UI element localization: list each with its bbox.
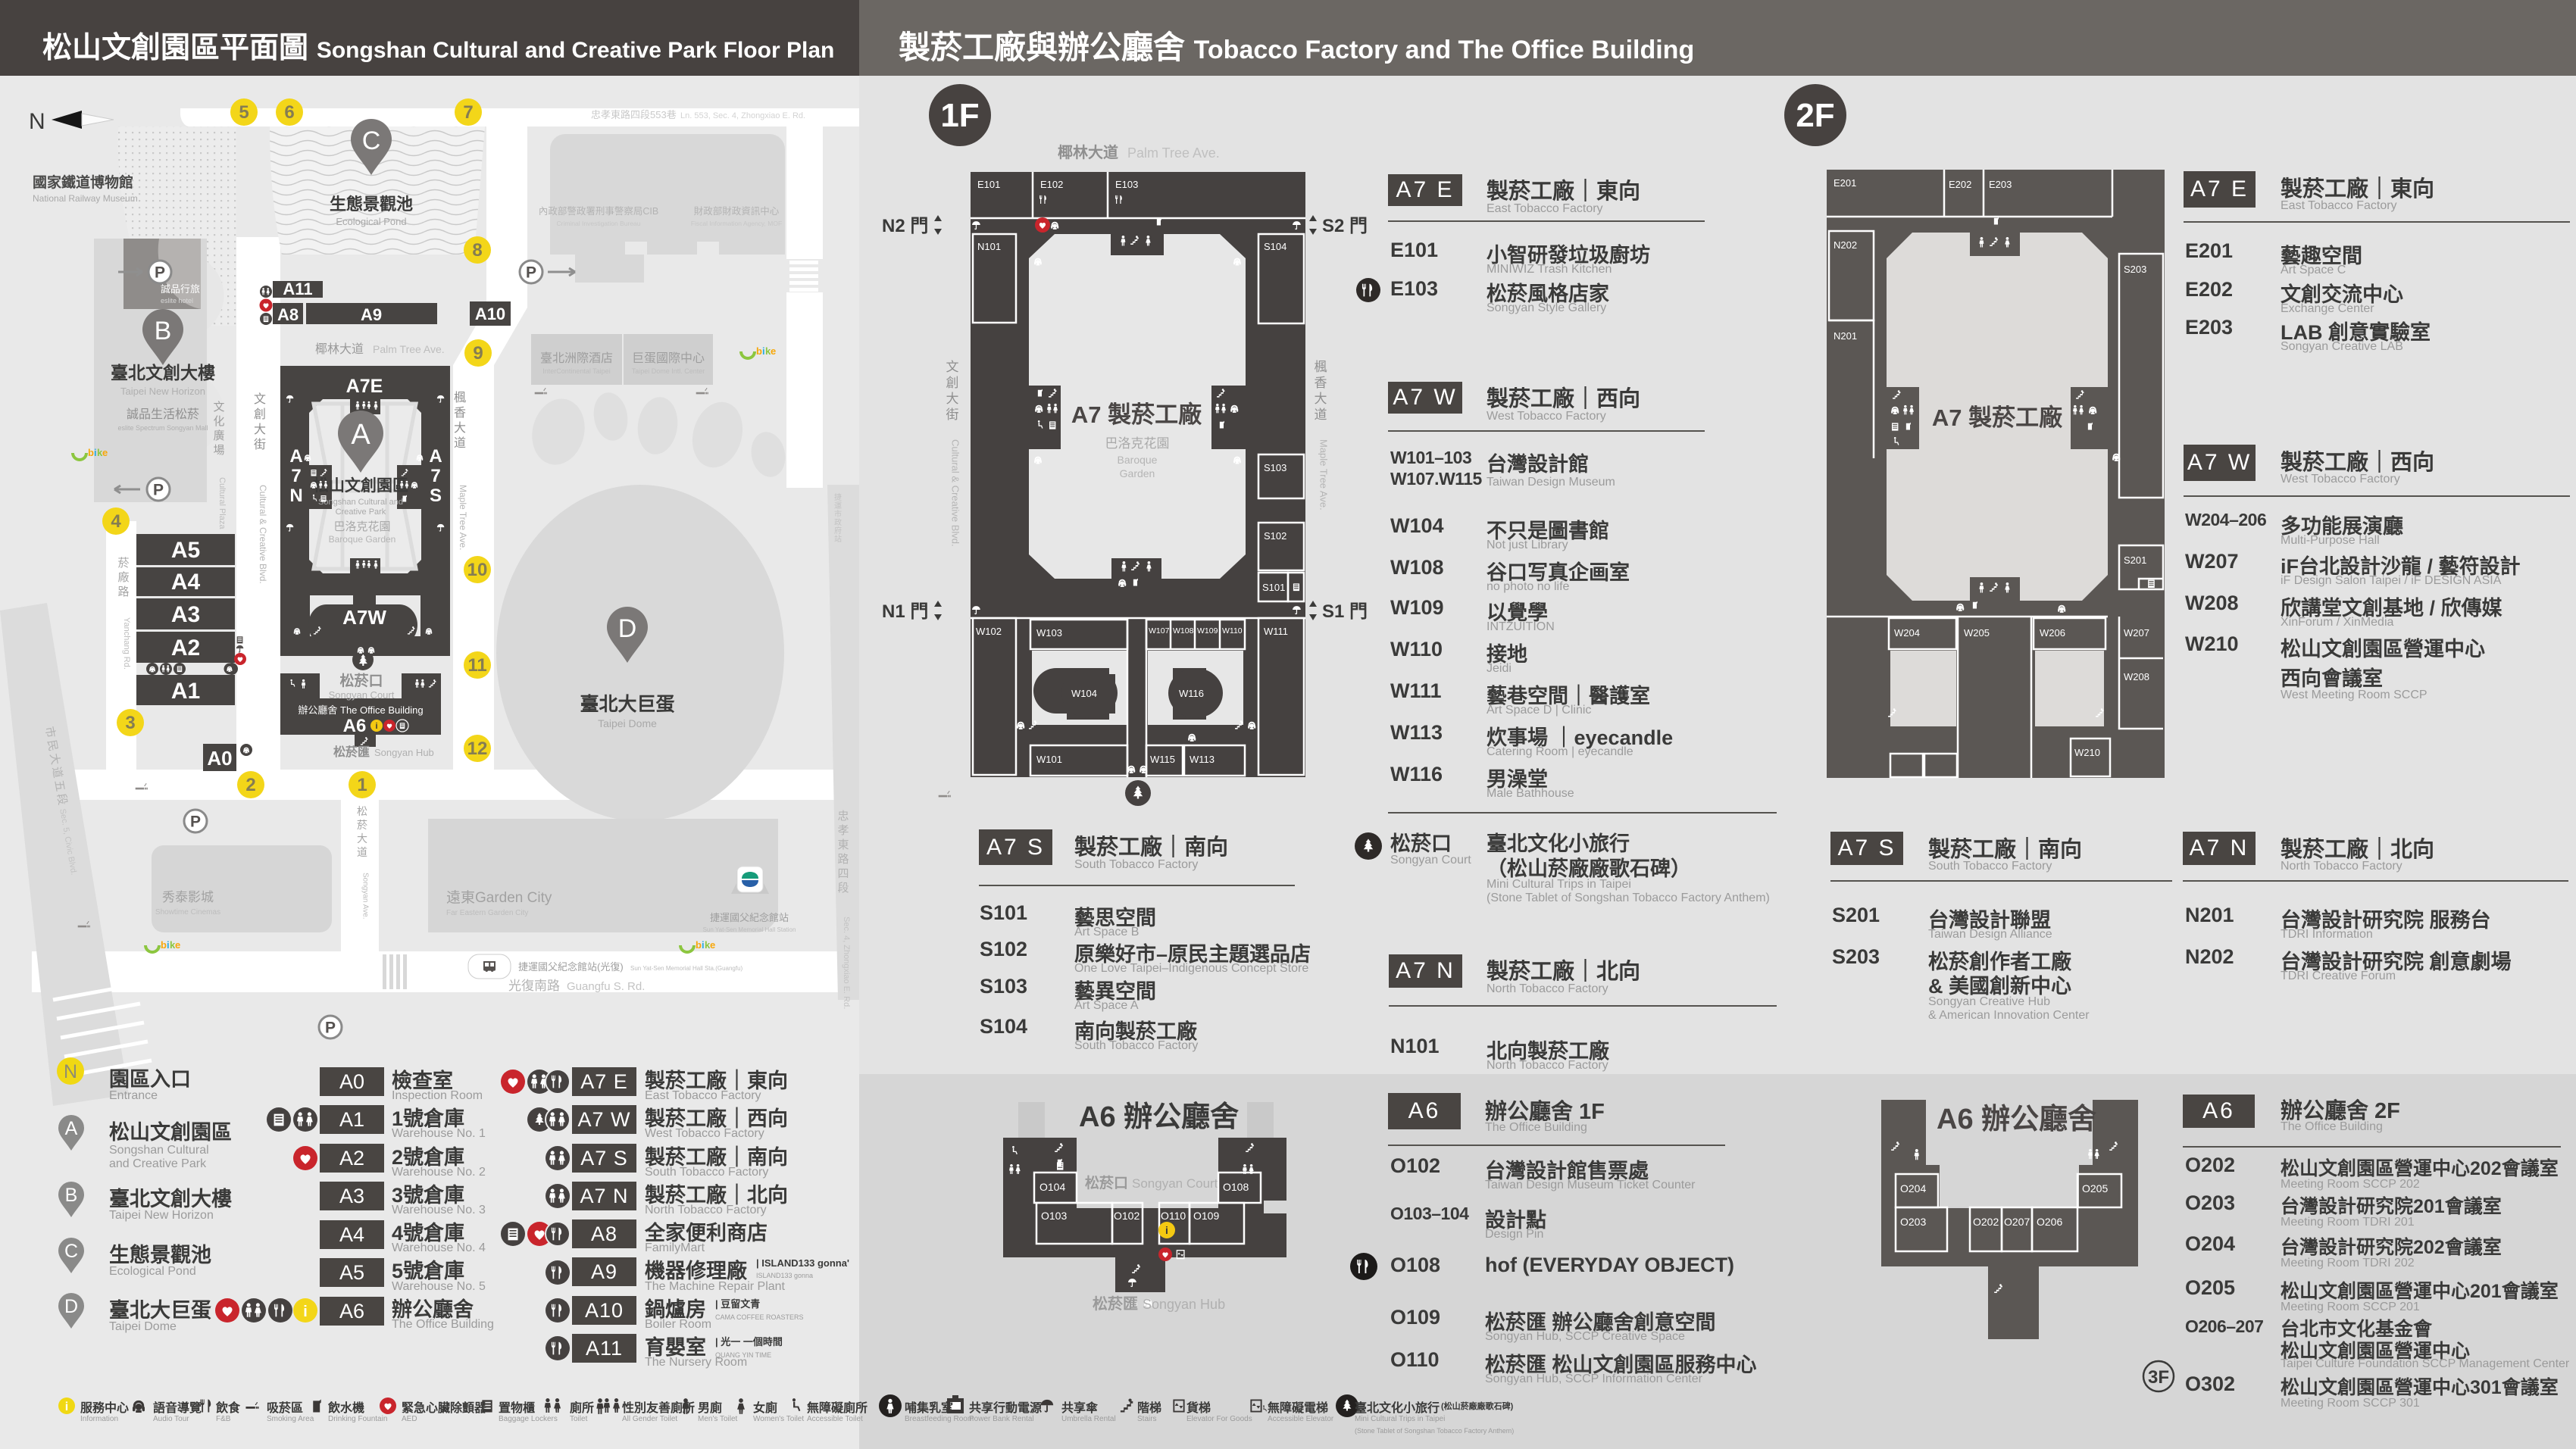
svg-text:e: e <box>710 939 715 951</box>
svg-text:巴洛克花園: 巴洛克花園 <box>333 520 390 533</box>
svg-text:2: 2 <box>245 775 255 795</box>
svg-text:7: 7 <box>291 466 301 486</box>
svg-text:Guangfu S. Rd.: Guangfu S. Rd. <box>567 980 645 993</box>
svg-text:1: 1 <box>357 775 367 795</box>
svg-text:W206: W206 <box>2040 627 2065 639</box>
svg-text:A4: A4 <box>171 570 201 595</box>
svg-text:W116: W116 <box>1179 688 1204 699</box>
svg-text:A: A <box>65 1118 78 1139</box>
svg-text:誠品生活松菸: 誠品生活松菸 <box>127 408 199 421</box>
svg-text:B: B <box>155 317 172 345</box>
svg-text:文創大街: 文創大街 <box>946 360 959 422</box>
svg-text:臺北洲際酒店: 臺北洲際酒店 <box>540 351 613 365</box>
svg-text:A5: A5 <box>171 538 200 563</box>
svg-text:N: N <box>289 486 302 506</box>
svg-text:i: i <box>65 1401 68 1413</box>
svg-text:12: 12 <box>467 739 488 759</box>
svg-text:S104: S104 <box>1264 241 1286 252</box>
svg-text:辦公廳舍 The Office Building: 辦公廳舍 The Office Building <box>298 704 423 716</box>
svg-text:C: C <box>64 1241 78 1262</box>
svg-text:D: D <box>64 1296 78 1317</box>
svg-text:O104: O104 <box>1039 1181 1065 1193</box>
svg-text:O103: O103 <box>1041 1210 1067 1222</box>
svg-text:b: b <box>88 447 94 458</box>
svg-text:O206: O206 <box>2037 1216 2062 1228</box>
svg-text:i: i <box>303 1304 308 1320</box>
svg-text:椰林大道: 椰林大道 <box>1058 143 1118 161</box>
svg-text:A8: A8 <box>277 305 299 324</box>
svg-text:W210: W210 <box>2074 747 2100 758</box>
svg-text:InterContinental Taipei: InterContinental Taipei <box>542 367 610 375</box>
svg-text:Sun Yat-Sen Memorial Hall Stat: Sun Yat-Sen Memorial Hall Station <box>703 926 796 933</box>
svg-text:巴洛克花園: 巴洛克花園 <box>1105 436 1170 451</box>
svg-text:3F: 3F <box>2148 1367 2169 1388</box>
svg-text:遠東Garden City: 遠東Garden City <box>446 889 552 906</box>
svg-text:臺北大巨蛋: 臺北大巨蛋 <box>580 694 674 715</box>
svg-text:松菸匯: 松菸匯 <box>1093 1294 1138 1313</box>
svg-text:8: 8 <box>472 240 482 261</box>
svg-text:O205: O205 <box>2082 1182 2108 1194</box>
svg-text:忠孝東路四段553巷: 忠孝東路四段553巷 <box>591 109 677 120</box>
svg-text:7: 7 <box>430 466 440 486</box>
svg-text:W204: W204 <box>1894 627 1920 639</box>
svg-text:S201: S201 <box>2124 554 2146 566</box>
svg-text:捷運國父紀念館站(光復): 捷運國父紀念館站(光復) <box>518 961 624 973</box>
svg-text:Ln. 553, Sec. 4, Zhongxiao E.: Ln. 553, Sec. 4, Zhongxiao E. Rd. <box>680 111 805 120</box>
svg-text:A11: A11 <box>283 279 312 298</box>
svg-text:N101: N101 <box>977 241 1001 252</box>
svg-text:A10: A10 <box>475 304 505 323</box>
svg-text:N: N <box>64 1061 77 1082</box>
svg-text:財政部財政資訊中心: 財政部財政資訊中心 <box>694 205 780 217</box>
svg-text:P: P <box>155 264 165 282</box>
svg-text:A3: A3 <box>171 602 200 627</box>
svg-text:D: D <box>618 614 637 643</box>
svg-text:椰林大道: 椰林大道 <box>315 342 364 356</box>
svg-text:松菸口: 松菸口 <box>339 672 383 689</box>
svg-text:A: A <box>351 419 370 451</box>
svg-text:A0: A0 <box>207 747 232 770</box>
svg-text:N: N <box>29 109 45 134</box>
svg-text:Palm Tree Ave.: Palm Tree Ave. <box>1127 145 1220 161</box>
svg-text:4: 4 <box>111 511 121 532</box>
svg-text:P: P <box>190 814 201 831</box>
svg-text:N202: N202 <box>1834 239 1857 251</box>
svg-text:生態景觀池: 生態景觀池 <box>330 195 413 214</box>
svg-text:Taipei Dome Intl. Center: Taipei Dome Intl. Center <box>632 367 705 375</box>
svg-text:捷運國父紀念館站: 捷運國父紀念館站 <box>710 912 789 923</box>
svg-text:W104: W104 <box>1071 688 1097 699</box>
svg-text:Songyan Hub: Songyan Hub <box>374 747 434 758</box>
svg-text:S101: S101 <box>1262 582 1285 593</box>
svg-text:A2: A2 <box>171 635 200 660</box>
svg-text:Fiscal Information Agency, MOF: Fiscal Information Agency, MOF <box>691 220 782 227</box>
svg-text:S102: S102 <box>1264 530 1286 542</box>
svg-text:Criminal Investigation Bureau: Criminal Investigation Bureau <box>556 220 640 227</box>
svg-text:Songyan Court: Songyan Court <box>329 689 395 701</box>
svg-text:P: P <box>526 264 536 282</box>
svg-text:O108: O108 <box>1223 1181 1249 1193</box>
svg-text:A6: A6 <box>343 716 367 736</box>
svg-text:National Railway Museum: National Railway Museum <box>33 193 138 204</box>
svg-text:S2 門: S2 門 <box>1322 216 1368 236</box>
svg-text:菸廠路: 菸廠路 <box>117 557 129 598</box>
svg-text:Far Eastern Garden City: Far Eastern Garden City <box>446 909 528 917</box>
svg-text:A: A <box>429 446 442 467</box>
svg-text:B: B <box>65 1185 78 1206</box>
svg-text:11: 11 <box>467 655 486 676</box>
svg-text:S203: S203 <box>2124 264 2146 275</box>
svg-text:光復南路: 光復南路 <box>508 979 560 993</box>
svg-text:W111: W111 <box>1264 626 1288 637</box>
svg-text:b: b <box>696 939 702 951</box>
svg-text:Palm Tree Ave.: Palm Tree Ave. <box>373 343 445 355</box>
svg-text:Songyan Hub: Songyan Hub <box>1143 1297 1225 1312</box>
svg-text:A: A <box>289 446 302 467</box>
svg-text:W110: W110 <box>1222 626 1243 635</box>
svg-text:e: e <box>771 345 776 357</box>
svg-text:O202: O202 <box>1973 1216 1999 1228</box>
svg-text:秀泰影城: 秀泰影城 <box>162 890 214 904</box>
svg-text:A7 製菸工廠: A7 製菸工廠 <box>1071 401 1202 428</box>
svg-text:A7 製菸工廠: A7 製菸工廠 <box>1932 404 2062 431</box>
svg-text:W109: W109 <box>1197 626 1218 635</box>
svg-text:誠品行旅: 誠品行旅 <box>161 283 200 295</box>
svg-text:O203: O203 <box>1900 1216 1926 1228</box>
svg-text:Cultural Plaza: Cultural Plaza <box>217 477 227 529</box>
svg-text:Baroque Garden: Baroque Garden <box>329 534 396 545</box>
svg-text:S103: S103 <box>1264 462 1286 473</box>
svg-text:楓香大道: 楓香大道 <box>1315 360 1327 422</box>
svg-text:W207: W207 <box>2124 627 2149 639</box>
svg-text:2F: 2F <box>1796 97 1834 134</box>
svg-text:7: 7 <box>463 102 473 123</box>
svg-text:W103: W103 <box>1036 627 1062 639</box>
svg-text:6: 6 <box>284 102 294 123</box>
svg-text:Songyan Court: Songyan Court <box>1132 1176 1218 1191</box>
svg-text:E203: E203 <box>1989 179 2012 190</box>
svg-text:e: e <box>102 447 108 458</box>
svg-text:A6 辦公廳舍: A6 辦公廳舍 <box>1937 1104 2096 1135</box>
svg-text:9: 9 <box>473 343 483 364</box>
svg-text:Garden: Garden <box>1120 467 1155 479</box>
svg-text:Songyan Ave.: Songyan Ave. <box>361 873 370 920</box>
svg-text:i: i <box>375 722 377 731</box>
svg-text:10: 10 <box>467 560 488 580</box>
svg-text:W108: W108 <box>1173 626 1194 635</box>
svg-text:O109: O109 <box>1193 1210 1219 1222</box>
svg-text:Baroque: Baroque <box>1118 454 1158 466</box>
svg-text:A1: A1 <box>171 679 200 704</box>
svg-text:eslite hotel: eslite hotel <box>161 297 193 304</box>
svg-text:E202: E202 <box>1949 179 1971 190</box>
svg-text:巨蛋國際中心: 巨蛋國際中心 <box>632 351 705 365</box>
svg-text:Yanchang Rd.: Yanchang Rd. <box>122 617 131 670</box>
svg-text:5: 5 <box>239 102 249 123</box>
svg-text:P: P <box>325 1020 336 1037</box>
svg-text:A9: A9 <box>361 305 382 324</box>
svg-text:W115: W115 <box>1150 754 1175 765</box>
svg-text:E101: E101 <box>977 179 1000 190</box>
svg-text:W102: W102 <box>976 626 1002 637</box>
svg-text:臺北文創大樓: 臺北文創大樓 <box>111 363 215 383</box>
svg-text:P: P <box>153 482 164 499</box>
svg-text:1F: 1F <box>940 97 979 134</box>
svg-text:O204: O204 <box>1900 1182 1926 1194</box>
svg-text:Cultural & Creative Blvd.: Cultural & Creative Blvd. <box>258 485 268 584</box>
svg-text:Showtime Cinemas: Showtime Cinemas <box>155 908 220 917</box>
svg-text:W107: W107 <box>1149 626 1170 635</box>
svg-text:Sec. 4, Zhongxiao E. Rd.: Sec. 4, Zhongxiao E. Rd. <box>842 917 851 1009</box>
svg-text:捷運市政府站: 捷運市政府站 <box>834 492 842 544</box>
svg-text:N2 門: N2 門 <box>882 216 928 236</box>
svg-text:A7W: A7W <box>342 606 386 629</box>
svg-text:C: C <box>362 126 381 155</box>
svg-text:W208: W208 <box>2124 671 2149 682</box>
svg-text:W205: W205 <box>1964 627 1990 639</box>
svg-text:O102: O102 <box>1114 1210 1140 1222</box>
svg-text:E201: E201 <box>1834 177 1856 189</box>
svg-text:Taipei Dome: Taipei Dome <box>598 717 657 729</box>
svg-text:S1 門: S1 門 <box>1322 601 1368 622</box>
svg-text:S: S <box>430 486 442 506</box>
svg-text:b: b <box>161 939 167 951</box>
svg-text:A7E: A7E <box>346 376 383 397</box>
svg-text:內政部警政署刑事警察局CIB: 內政部警政署刑事警察局CIB <box>539 205 658 217</box>
svg-text:Taipei New Horizon: Taipei New Horizon <box>120 386 205 397</box>
svg-text:E103: E103 <box>1115 179 1138 190</box>
svg-text:N1 門: N1 門 <box>882 601 928 622</box>
svg-text:松菸口: 松菸口 <box>1085 1174 1128 1191</box>
svg-text:b: b <box>756 345 762 357</box>
svg-text:W101: W101 <box>1036 754 1062 765</box>
svg-text:e: e <box>175 939 180 951</box>
svg-text:W113: W113 <box>1190 754 1215 765</box>
svg-text:3: 3 <box>125 713 135 733</box>
svg-text:Maple Tree Ave.: Maple Tree Ave. <box>458 485 468 551</box>
svg-text:E102: E102 <box>1040 179 1063 190</box>
svg-text:N201: N201 <box>1834 330 1857 342</box>
svg-text:A6 辦公廳舍: A6 辦公廳舍 <box>1079 1101 1239 1133</box>
svg-text:Maple Tree Ave.: Maple Tree Ave. <box>1318 439 1330 511</box>
svg-text:松菸匯: 松菸匯 <box>333 745 370 759</box>
svg-text:Cultural & Creative Blvd.: Cultural & Creative Blvd. <box>950 439 961 547</box>
svg-text:O207: O207 <box>2004 1216 2030 1228</box>
svg-text:i: i <box>1165 1224 1168 1236</box>
svg-text:O110: O110 <box>1161 1210 1186 1222</box>
svg-text:Songshan Cultural and: Songshan Cultural and <box>318 498 403 507</box>
svg-text:Creative Park: Creative Park <box>336 507 386 517</box>
svg-text:eslite Spectrum Songyan Mall: eslite Spectrum Songyan Mall <box>117 424 208 432</box>
svg-text:Sun Yat-Sen Memorial Hall Sta.: Sun Yat-Sen Memorial Hall Sta.(Guangfu) <box>630 965 743 972</box>
svg-text:國家鐵道博物館: 國家鐵道博物館 <box>33 173 133 191</box>
svg-text:Ecological Pond: Ecological Pond <box>336 216 406 227</box>
